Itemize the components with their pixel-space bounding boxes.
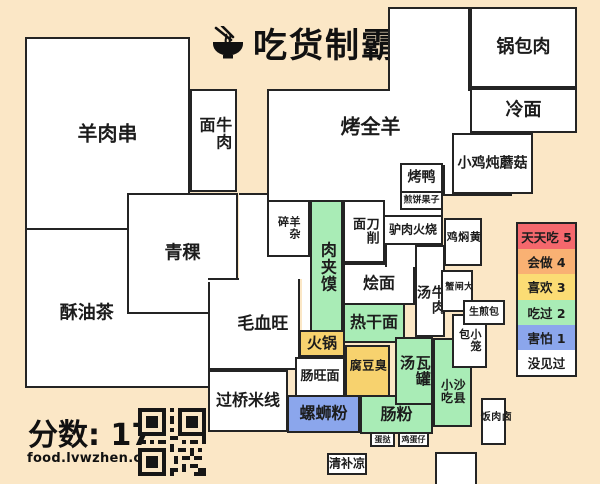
region-huangmenji[interactable]: 黄焖鸡: [444, 218, 482, 266]
region-label-roujiamo: 肉夹馍: [318, 241, 335, 292]
region-label-huangmenji: 黄焖鸡: [446, 231, 481, 253]
legend-item-4: 吃过 2: [518, 300, 575, 325]
legend-item-label: 会做 4: [527, 252, 565, 271]
region-label-lvrouhuoshao: 驴肉火烧: [389, 224, 437, 237]
region-label-jianbingguozi: 煎饼果子: [403, 196, 439, 205]
region-huimian[interactable]: 烩面: [343, 263, 415, 305]
region-luroufan[interactable]: 卤肉饭: [481, 398, 506, 445]
region-huimian-notch: [385, 245, 415, 267]
region-qingbuliang[interactable]: 清补凉: [327, 453, 367, 475]
region-label-reganmian: 热干面: [350, 315, 398, 332]
region-label-dazhaxie: 大闸蟹: [443, 282, 471, 301]
region-label-huimian: 烩面: [363, 276, 395, 293]
region-waguantang[interactable]: 瓦罐汤: [395, 337, 433, 405]
region-xiaojidunmogu[interactable]: 小鸡炖蘑菇: [452, 133, 533, 194]
region-label-daoxiaomian: 刀削面: [350, 217, 377, 247]
score-text: 分数: 17: [28, 410, 152, 454]
region-daoxiaomian[interactable]: 刀削面: [343, 200, 385, 263]
region-label-yangrouchuan: 羊肉串: [78, 123, 138, 144]
region-guobaorou[interactable]: 锅包肉: [470, 7, 577, 88]
region-kaoya[interactable]: 烤鸭: [400, 163, 443, 193]
noodle-bowl-icon: [210, 26, 246, 60]
legend-item-3: 喜欢 3: [518, 274, 575, 299]
region-label-maoxuewang: 毛血旺: [237, 316, 288, 334]
region-label-xiaojidunmogu: 小鸡炖蘑菇: [458, 156, 528, 171]
region-danta[interactable]: 蛋挞: [370, 432, 395, 447]
region-label-kaoquanyang: 烤全羊: [340, 116, 400, 137]
region-label-qingbuliang: 清补凉: [329, 458, 365, 471]
region-label-waguantang: 瓦罐汤: [398, 355, 430, 387]
legend-item-6: 没见过: [518, 350, 575, 375]
region-label-luosifen: 螺蛳粉: [299, 406, 347, 423]
region-roujiamo[interactable]: 肉夹馍: [310, 200, 343, 333]
region-label-xiaolongbao: 小笼包: [458, 329, 481, 354]
region-label-changwangmian: 肠旺面: [300, 370, 339, 384]
legend-item-5: 害怕 1: [518, 325, 575, 350]
legend-item-1: 天天吃 5: [518, 224, 575, 249]
legend-item-label: 喜欢 3: [527, 277, 565, 296]
region-label-lengmian: 冷面: [506, 101, 542, 120]
region-seam-north: [390, 86, 468, 94]
status-legend: 天天吃 5会做 4喜欢 3吃过 2害怕 1没见过: [516, 222, 577, 377]
region-label-danta: 蛋挞: [375, 435, 391, 443]
region-label-choudoufu: 臭豆腐: [349, 359, 387, 383]
region-yangzasui[interactable]: 羊杂碎: [267, 200, 310, 257]
region-jidanzai[interactable]: 鸡蛋仔: [398, 432, 429, 447]
region-label-kaoya: 烤鸭: [408, 171, 436, 186]
legend-item-label: 害怕 1: [527, 328, 565, 347]
legend-item-2: 会做 4: [518, 249, 575, 274]
page-title: 吃货制霸: [253, 18, 397, 67]
region-lengmian[interactable]: 冷面: [470, 88, 577, 133]
legend-item-label: 天天吃 5: [521, 227, 572, 246]
region-maoxuewang-topline: [208, 278, 239, 282]
region-label-guoqiaomixian: 过桥米线: [216, 393, 280, 410]
region-label-shaxianxiaochi: 沙县小吃: [440, 378, 465, 409]
app-title-bar: 吃货制霸: [210, 18, 397, 67]
region-label-yangzasui: 羊杂碎: [277, 215, 300, 242]
region-choudoufu[interactable]: 臭豆腐: [345, 345, 390, 397]
region-lvrouhuoshao[interactable]: 驴肉火烧: [383, 215, 443, 245]
region-label-qingke: 青稞: [165, 244, 201, 263]
foodie-map-app: 吃货制霸 烤全羊锅包肉冷面小鸡炖蘑菇羊肉串牛肉面酥油茶青稞毛血旺羊杂碎肉夹馍刀削…: [0, 0, 600, 484]
legend-item-label: 吃过 2: [527, 303, 565, 322]
region-jianbingguozi[interactable]: 煎饼果子: [400, 191, 443, 210]
region-changwangmian[interactable]: 肠旺面: [295, 357, 345, 397]
qr-code: [138, 408, 206, 480]
region-label-shengjianbao: 生煎包: [469, 307, 499, 318]
region-label-niuroumian: 牛肉面: [197, 116, 231, 166]
region-label-huoguo: 火锅: [307, 336, 337, 352]
region-gap-west: [239, 193, 267, 282]
region-maoxuewang[interactable]: 毛血旺: [208, 278, 300, 370]
region-label-changfen: 肠粉: [380, 406, 412, 423]
region-shengjianbao[interactable]: 生煎包: [463, 300, 505, 325]
region-huoguo[interactable]: 火锅: [299, 330, 345, 357]
region-label-luroufan: 卤肉饭: [478, 411, 510, 433]
region-kaoquanyang-north: [388, 7, 470, 91]
region-label-guobaorou: 锅包肉: [497, 38, 551, 57]
region-niuroumian[interactable]: 牛肉面: [190, 89, 237, 192]
region-label-suyoucha: 酥油茶: [60, 305, 114, 324]
region-luosifen[interactable]: 螺蛳粉: [287, 395, 360, 433]
region-unknown-region[interactable]: [435, 452, 477, 484]
region-seam-east: [441, 91, 447, 165]
region-label-jidanzai: 鸡蛋仔: [402, 435, 426, 443]
region-guoqiaomixian[interactable]: 过桥米线: [208, 370, 288, 432]
region-gap-east: [302, 257, 310, 332]
legend-item-label: 没见过: [528, 353, 566, 372]
